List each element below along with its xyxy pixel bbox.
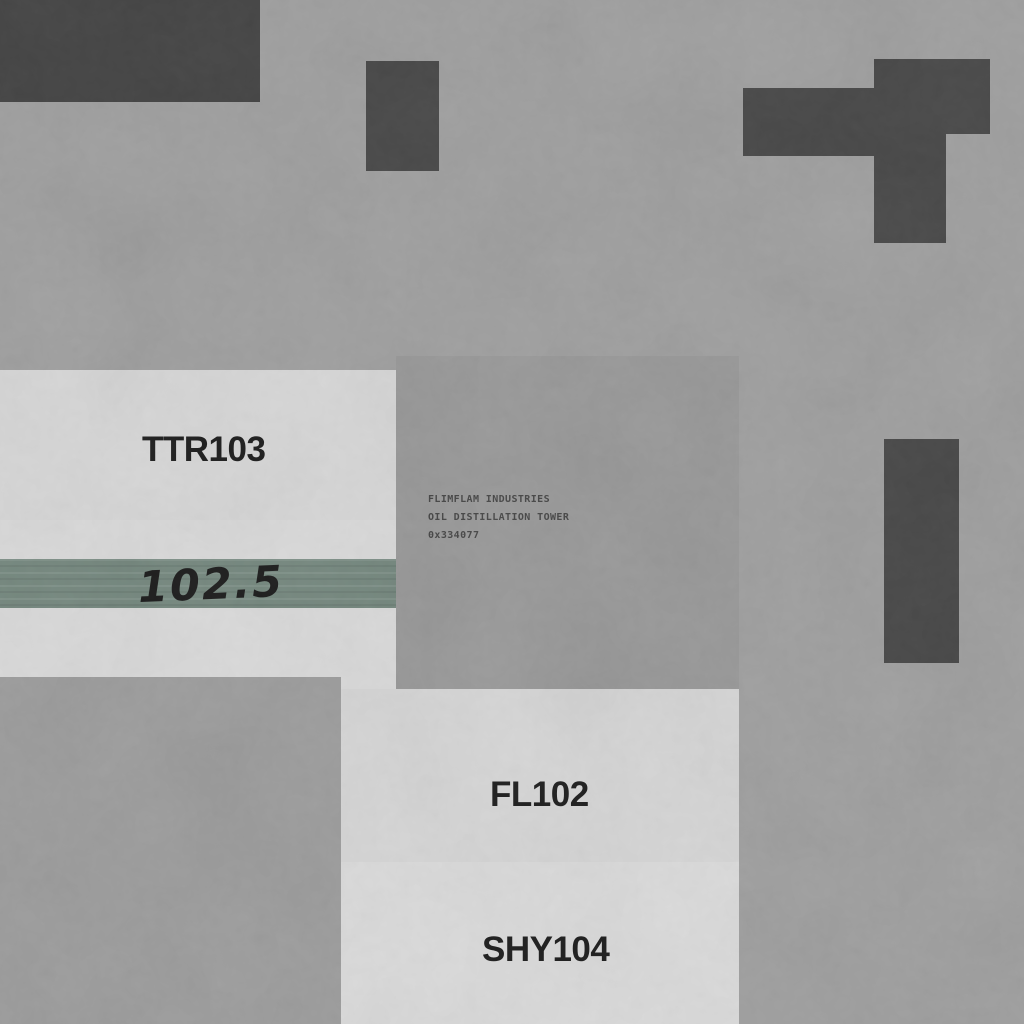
- dark-block-top-right-cap: [946, 59, 990, 134]
- dark-block-top-right-column: [874, 59, 946, 243]
- plaque-line-company: FLIMFLAM INDUSTRIES: [428, 491, 569, 509]
- bottom-left-concrete-slab: [0, 677, 341, 1024]
- unit-label-shy104: SHY104: [482, 930, 609, 970]
- gauge-handwritten-value: 102.5: [137, 557, 285, 613]
- manufacturer-plaque: FLIMFLAM INDUSTRIES OIL DISTILLATION TOW…: [428, 491, 569, 546]
- plaque-line-product: OIL DISTILLATION TOWER: [428, 509, 569, 527]
- oil-distillation-tower-surface: TTR103 102.5 FL102 SHY104 FLIMFLAM INDUS…: [0, 0, 1024, 1024]
- unit-label-ttr103: TTR103: [142, 430, 265, 470]
- dark-block-top-left: [0, 0, 260, 102]
- plaque-line-serial: 0x334077: [428, 527, 569, 545]
- fl-shy-unit-panel: [341, 689, 739, 1024]
- dark-vent-block: [366, 61, 439, 171]
- dark-block-right-tall: [884, 439, 959, 663]
- dark-block-top-right-bar: [743, 88, 874, 156]
- ttr-unit-panel: [0, 370, 396, 690]
- unit-label-fl102: FL102: [490, 775, 589, 815]
